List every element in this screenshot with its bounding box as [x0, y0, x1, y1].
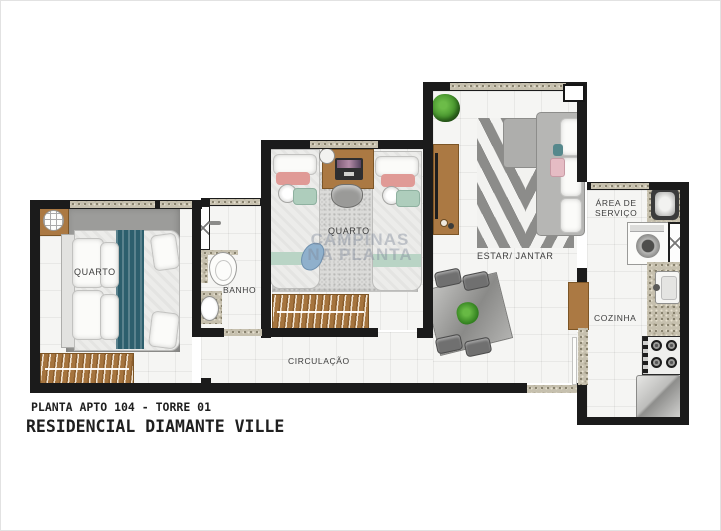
burner-icon: [666, 357, 677, 368]
burner-icon: [666, 340, 677, 351]
laptop-key: [344, 172, 354, 176]
floorplan-canvas: QUARTO BANHO QUARTO: [0, 0, 721, 531]
fridge: [636, 375, 681, 420]
living-dining-label: ESTAR/ JANTAR: [477, 251, 553, 261]
bed-foot-pillow: [150, 232, 181, 271]
service-area-label-line2: SERVIÇO: [595, 208, 637, 218]
window: [70, 201, 155, 208]
sink-basin: [661, 276, 677, 300]
kitchen-label: COZINHA: [594, 313, 636, 323]
bed-pillow: [100, 242, 119, 288]
burner-icon: [651, 357, 662, 368]
bed-pillow: [100, 294, 119, 340]
tv-icon: [435, 153, 438, 219]
wall: [192, 328, 224, 337]
pink-pillow: [276, 172, 310, 185]
wall: [201, 378, 211, 393]
burner-icon: [651, 340, 662, 351]
plan-subtitle: PLANTA APTO 104 - TORRE 01: [31, 400, 211, 414]
column: [563, 84, 585, 102]
bedroom1-side-table: [38, 205, 69, 236]
wall: [423, 82, 433, 333]
washer-panel: [630, 225, 664, 232]
window: [210, 199, 260, 205]
bedroom1-wardrobe: [40, 353, 134, 385]
tank-basin: [655, 192, 675, 216]
washer-door: [636, 234, 660, 258]
wall: [192, 200, 201, 332]
watermark: CAMPINAS NA PLANTA: [295, 232, 425, 262]
side-table-lamp-icon: [43, 210, 64, 231]
pink-pillow: [381, 174, 415, 187]
tv-sideboard: [433, 144, 459, 235]
laptop-icon: [335, 158, 363, 180]
window: [160, 201, 192, 208]
wall: [30, 383, 527, 393]
window: [450, 83, 566, 90]
stove-knobs: [643, 337, 648, 374]
bed-foot-pillow: [148, 310, 180, 349]
service-area-label: ÁREA DE SERVIÇO: [595, 198, 637, 218]
wall: [577, 383, 587, 425]
kitchen-sink: [655, 271, 680, 304]
pass-through-counter: [578, 328, 588, 385]
green-cushion: [293, 188, 317, 205]
window: [591, 183, 649, 189]
hallway-label: CIRCULAÇÃO: [288, 356, 350, 366]
door-threshold: [224, 329, 262, 336]
centerpiece-plant-icon: [454, 300, 481, 327]
decor-icon: [440, 219, 448, 227]
wall: [580, 417, 689, 425]
open-door-leaf: [572, 337, 577, 385]
shower-head-icon: [209, 221, 221, 225]
plant-icon: [432, 94, 460, 122]
wall: [261, 140, 271, 338]
wall: [262, 328, 378, 337]
pink-accent-pillow: [550, 158, 565, 177]
teal-accent-pillow: [553, 144, 563, 156]
wall: [30, 200, 40, 393]
desk-clock-icon: [319, 148, 335, 164]
wall: [680, 182, 689, 425]
desk-chair: [331, 184, 363, 208]
bathroom-sink-basin: [200, 296, 219, 321]
wall: [577, 268, 587, 283]
entry-threshold: [527, 385, 577, 393]
watermark-line2: NA PLANTA: [295, 247, 425, 262]
bed-teal-runner: [116, 230, 144, 349]
bedroom1-label: QUARTO: [74, 267, 116, 277]
bathroom-label: BANHO: [223, 285, 256, 295]
single-bed-right: [372, 151, 422, 291]
decor-icon: [448, 223, 454, 229]
entry-door-leaf: [568, 282, 589, 330]
bedroom2-wardrobe: [272, 294, 369, 329]
laundry-tank: [651, 188, 679, 220]
bedroom2-desk: [322, 149, 374, 189]
plan-title: RESIDENCIAL DIAMANTE VILLE: [26, 417, 284, 436]
green-cushion: [396, 190, 420, 207]
washing-machine: [627, 222, 669, 265]
faucet-icon: [653, 284, 660, 291]
stove: [642, 336, 681, 375]
window: [310, 141, 378, 148]
toilet-seat: [215, 260, 232, 281]
service-area-label-line1: ÁREA DE: [595, 198, 637, 208]
laptop-screen: [337, 160, 361, 168]
sofa-cushion: [560, 198, 582, 233]
